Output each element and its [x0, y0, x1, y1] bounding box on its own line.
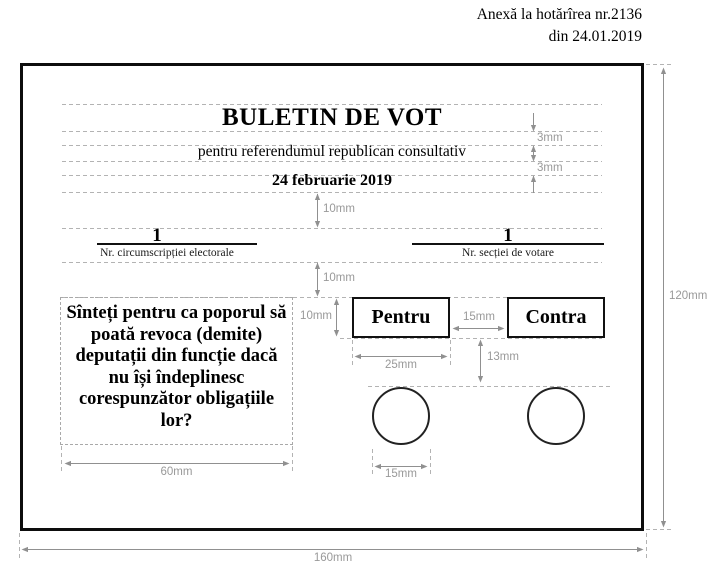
vote-circle-against	[527, 387, 585, 445]
option-against-box: Contra	[507, 297, 605, 338]
ballot-subtitle: pentru referendumul republican consultat…	[21, 143, 643, 161]
constituency-number: 1	[97, 227, 217, 244]
document-page: Anexă la hotărîrea nr.2136 din 24.01.201…	[0, 0, 720, 582]
dim-label-question-box-width: 60mm	[60, 466, 293, 479]
dim-label-gap-subtitle-date: 3mm	[537, 162, 563, 175]
option-for-box: Pentru	[352, 297, 450, 338]
dim-label-ballot-height: 120mm	[669, 290, 707, 303]
station-number: 1	[412, 227, 604, 244]
question-text: Sînteți pentru ca poporul să poată revoc…	[61, 298, 292, 432]
constituency-underline	[97, 243, 257, 245]
annex-note: Anexă la hotărîrea nr.2136 din 24.01.201…	[477, 4, 642, 48]
dim-label-option-box-width: 25mm	[352, 359, 450, 372]
station-caption: Nr. secției de votare	[412, 246, 604, 260]
annex-note-line2: din 24.01.2019	[477, 26, 642, 48]
question-line: poată revoca (demite)	[61, 325, 292, 347]
dim-label-ballot-width: 160mm	[20, 552, 646, 565]
dim-label-gap-row-question: 10mm	[323, 272, 355, 285]
constituency-caption: Nr. circumscripției electorale	[87, 246, 247, 260]
station-underline	[412, 243, 604, 245]
ballot-title: BULETIN DE VOT	[21, 104, 643, 131]
annex-note-line1: Anexă la hotărîrea nr.2136	[477, 4, 642, 26]
dim-label-gap-date-row: 10mm	[323, 203, 355, 216]
dim-label-option-box-height: 10mm	[294, 310, 332, 323]
question-line: lor?	[61, 411, 292, 433]
question-line: deputații din funcție dacă	[61, 346, 292, 368]
dim-label-gap-title-subtitle: 3mm	[537, 132, 563, 145]
question-line: corespunzător obligațiile	[61, 389, 292, 411]
vote-circle-for	[372, 387, 430, 445]
question-line: nu își îndeplinesc	[61, 368, 292, 390]
dim-label-option-box-gap: 15mm	[452, 311, 506, 324]
question-box: Sînteți pentru ca poporul să poată revoc…	[60, 297, 293, 445]
dim-label-box-to-circle: 13mm	[487, 351, 519, 364]
question-line: Sînteți pentru ca poporul să	[61, 303, 292, 325]
dim-label-circle-diameter: 15mm	[372, 468, 430, 481]
